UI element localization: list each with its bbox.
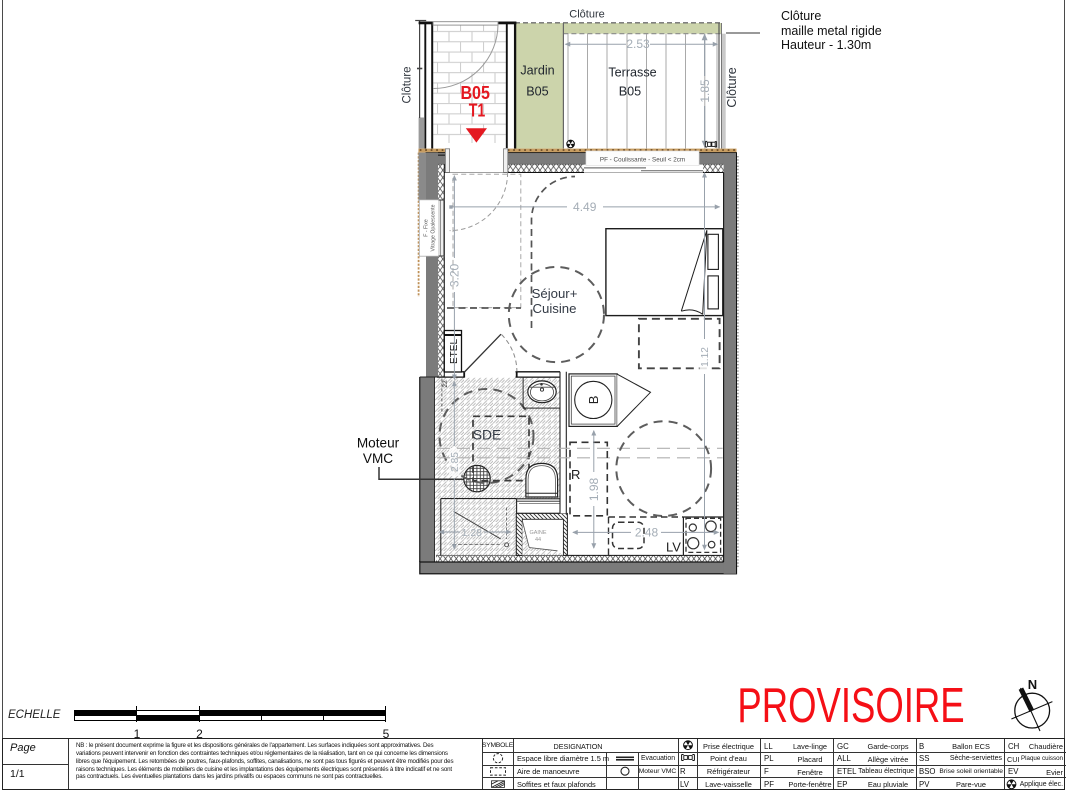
svg-text:1.85: 1.85	[698, 79, 712, 103]
svg-text:Jardin: Jardin	[520, 64, 554, 78]
svg-text:R: R	[571, 467, 580, 482]
svg-text:Cuisine: Cuisine	[533, 301, 577, 316]
svg-text:SDE: SDE	[473, 428, 501, 443]
svg-text:B: B	[586, 396, 601, 405]
svg-text:3.20: 3.20	[448, 263, 462, 287]
svg-text:Vitrage Opalescente: Vitrage Opalescente	[431, 204, 437, 251]
svg-text:N: N	[1028, 677, 1037, 692]
svg-text:2.85: 2.85	[450, 452, 461, 472]
svg-text:Moteur: Moteur	[357, 436, 400, 451]
svg-text:GAINE: GAINE	[529, 530, 546, 536]
svg-text:1.28: 1.28	[462, 527, 483, 539]
svg-text:T1: T1	[469, 100, 486, 121]
svg-text:PF - Coulissante - Seuil < 2cm: PF - Coulissante - Seuil < 2cm	[600, 156, 685, 163]
svg-text:22: 22	[442, 380, 449, 388]
svg-text:LV: LV	[666, 540, 681, 555]
svg-text:Clôture: Clôture	[725, 67, 739, 107]
svg-text:Séjour+: Séjour+	[532, 286, 578, 301]
svg-text:1.12: 1.12	[700, 347, 711, 367]
svg-text:Clôture: Clôture	[401, 66, 413, 103]
svg-text:2.48: 2.48	[635, 526, 659, 540]
svg-text:Terrasse: Terrasse	[608, 66, 656, 80]
svg-text:Clôture: Clôture	[569, 9, 604, 21]
svg-text:B05: B05	[619, 85, 641, 99]
svg-text:1.98: 1.98	[587, 477, 601, 501]
svg-text:F - Fixe: F - Fixe	[424, 219, 430, 237]
svg-text:4.49: 4.49	[573, 200, 597, 214]
svg-text:2.53: 2.53	[626, 37, 650, 51]
svg-text:B05: B05	[526, 85, 548, 99]
svg-text:44: 44	[535, 537, 541, 543]
svg-text:VMC: VMC	[363, 451, 393, 466]
